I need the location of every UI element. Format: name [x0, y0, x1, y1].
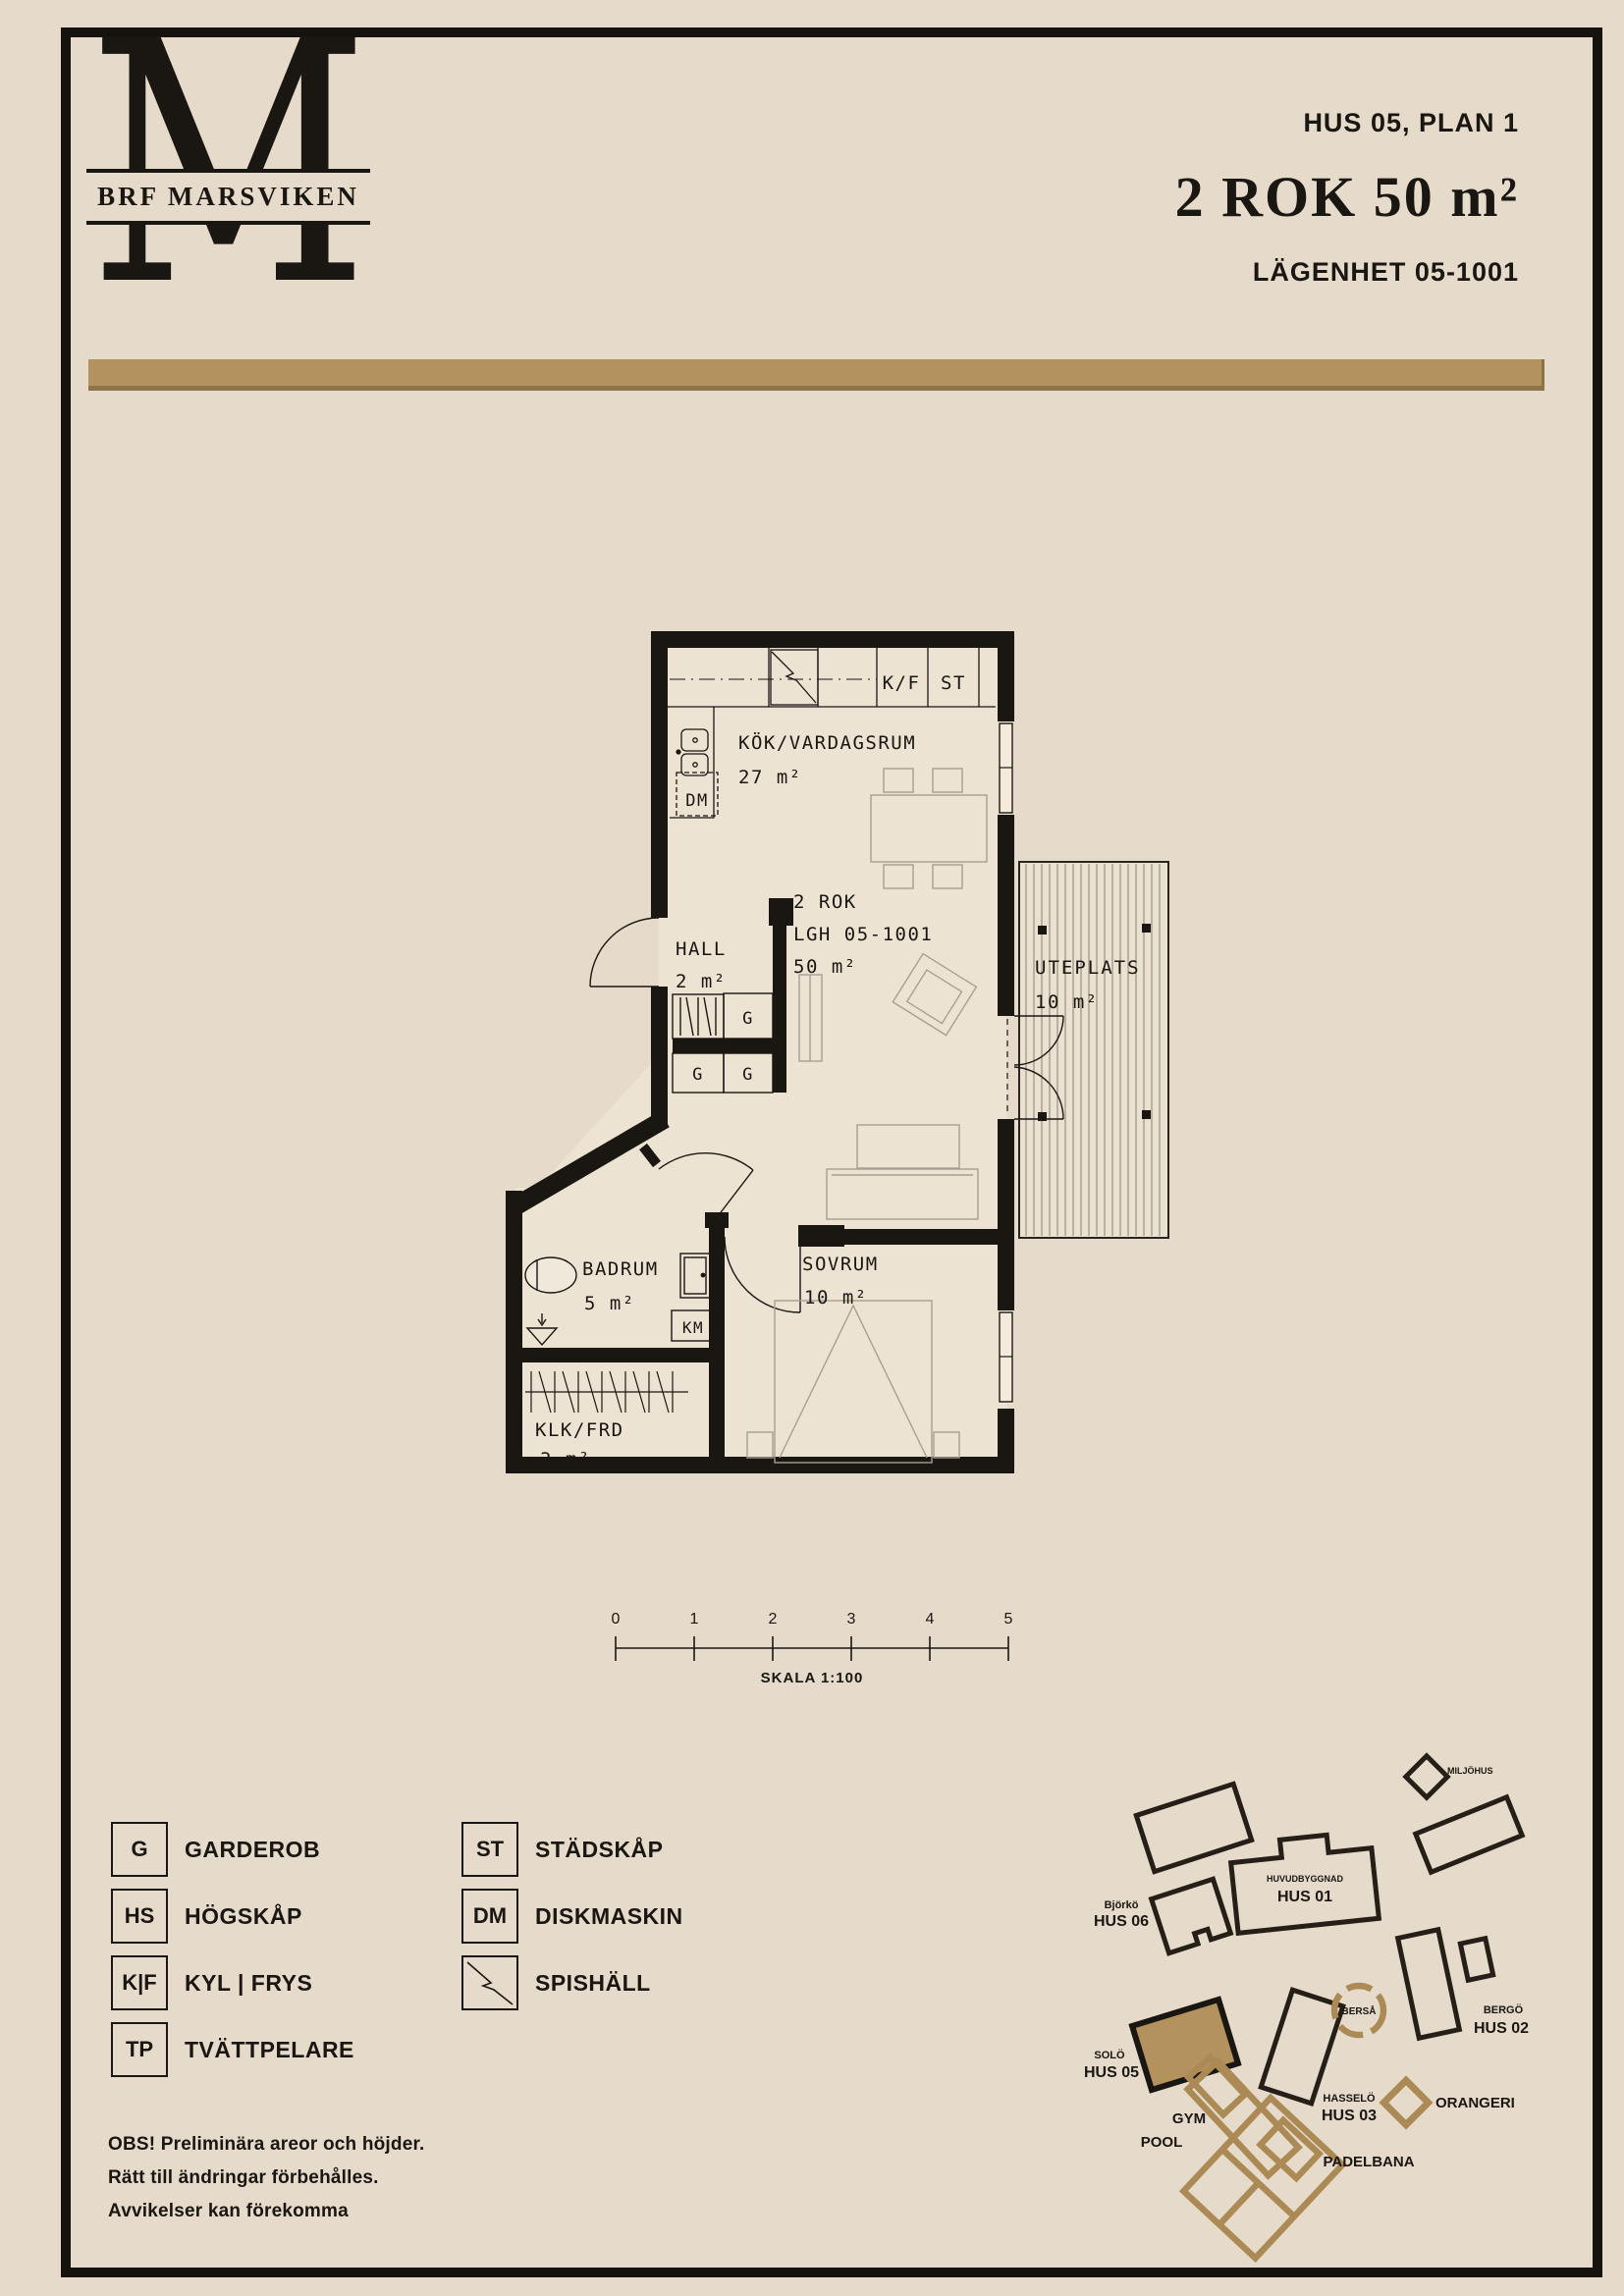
site-label-hus02: HUS 02 [1474, 2020, 1529, 2037]
room-bathroom-area: 5 m² [584, 1293, 635, 1314]
unit-area: 50 m² [793, 956, 857, 978]
room-closet-area: 3 m² [540, 1449, 591, 1470]
header-block: HUS 05, PLAN 1 2 ROK 50 m² LÄGENHET 05-1… [1175, 108, 1519, 288]
fixture-st-label: ST [941, 672, 966, 694]
fixture-kf-label: K/F [883, 672, 921, 694]
legend-symbol-kf: K|F [111, 1955, 168, 2010]
disclaimer-line-1: OBS! Preliminära areor och höjder. [108, 2128, 425, 2162]
fixture-km-label: KM [682, 1318, 704, 1337]
room-bathroom-name: BADRUM [582, 1258, 659, 1280]
site-label-orangeri: ORANGERI [1435, 2095, 1515, 2111]
gold-divider [88, 359, 1544, 391]
unit-type: 2 ROK [793, 891, 857, 913]
site-building-hus06 [1152, 1879, 1231, 1953]
disclaimer-text: OBS! Preliminära areor och höjder. Rätt … [108, 2128, 425, 2228]
disclaimer-line-3: Avvikelser kan förekomma [108, 2195, 425, 2228]
fixture-dm-label: DM [685, 791, 708, 811]
legend-column-2: ST STÄDSKÅP DM DISKMASKIN SPISHÄLL [461, 1822, 683, 2022]
wardrobe-g-3: G [742, 1065, 754, 1085]
site-label-hus03: HUS 03 [1322, 2108, 1377, 2124]
legend-symbol-hs: HS [111, 1889, 168, 1944]
scale-tick-3: 3 [847, 1611, 856, 1628]
site-label-miljohus: MILJÖHUS [1447, 1766, 1493, 1776]
legend-item-hogskap: HS HÖGSKÅP [111, 1889, 354, 1944]
room-terrace-area: 10 m² [1035, 991, 1099, 1013]
logo-monogram: M [88, 0, 368, 332]
site-label-huvudbyggnad: HUVUDBYGGNAD [1267, 1874, 1344, 1884]
scale-tick-5: 5 [1004, 1611, 1013, 1628]
room-terrace-name: UTEPLATS [1035, 957, 1141, 979]
scale-tick-0: 0 [612, 1611, 621, 1628]
scale-tick-4: 4 [926, 1611, 935, 1628]
wardrobe-g-1: G [742, 1009, 754, 1029]
site-building-hus03 [1261, 1990, 1342, 2104]
apartment-label: LÄGENHET 05-1001 [1175, 257, 1519, 288]
wardrobe-g-2: G [692, 1065, 704, 1085]
site-building-hus02b [1460, 1939, 1492, 1981]
site-map: MILJÖHUS Björkö HUS 06 HUVUDBYGGNAD HUS … [1070, 1706, 1551, 2266]
room-kitchen-area: 27 m² [738, 767, 802, 788]
logo-band: BRF MARSVIKEN [86, 169, 370, 225]
stove-lightning-icon [461, 1955, 518, 2010]
room-hall-area: 2 m² [676, 971, 727, 992]
scale-label: SKALA 1:100 [761, 1670, 864, 1686]
site-building-hus02 [1398, 1930, 1460, 2038]
room-bedroom-area: 10 m² [804, 1287, 868, 1308]
legend-symbol-st: ST [461, 1822, 518, 1877]
site-building-unlabeled [1136, 1784, 1251, 1871]
site-label-hus01: HUS 01 [1277, 1889, 1332, 1905]
room-kitchen-name: KÖK/VARDAGSRUM [738, 731, 916, 754]
legend-item-diskmaskin: DM DISKMASKIN [461, 1889, 683, 1944]
site-label-hasselo: HASSELÖ [1323, 2092, 1376, 2105]
scale-bar: 0 1 2 3 4 5 SKALA 1:100 [604, 1592, 1026, 1690]
site-label-solo: SOLÖ [1094, 2049, 1125, 2061]
room-hall-name: HALL [676, 938, 727, 960]
unit-id: LGH 05-1001 [793, 924, 933, 945]
site-label-padelbana: PADELBANA [1323, 2154, 1414, 2170]
toilet-icon [525, 1257, 576, 1293]
brand-name: BRF MARSVIKEN [97, 182, 359, 212]
legend-item-garderob: G GARDEROB [111, 1822, 354, 1877]
room-closet-name: KLK/FRD [535, 1419, 624, 1441]
page-title: 2 ROK 50 m² [1175, 164, 1519, 230]
legend-column-1: G GARDEROB HS HÖGSKÅP K|F KYL | FRYS TP … [111, 1822, 354, 2089]
legend-symbol-g: G [111, 1822, 168, 1877]
disclaimer-line-2: Rätt till ändringar förbehålles. [108, 2162, 425, 2195]
legend-symbol-tp: TP [111, 2022, 168, 2077]
site-label-hus06: HUS 06 [1094, 1913, 1149, 1930]
legend-item-spishall: SPISHÄLL [461, 1955, 683, 2010]
house-plan-label: HUS 05, PLAN 1 [1175, 108, 1519, 138]
site-label-gym: GYM [1172, 2110, 1206, 2127]
terrace-deck [1019, 862, 1168, 1238]
floor-plan: KÖK/VARDAGSRUM 27 m² K/F ST DM 2 ROK LGH… [496, 623, 1183, 1507]
legend-item-stadskap: ST STÄDSKÅP [461, 1822, 683, 1877]
legend-symbol-dm: DM [461, 1889, 518, 1944]
legend-item-tvattpelare: TP TVÄTTPELARE [111, 2022, 354, 2077]
site-label-bergo: BERGÖ [1484, 2003, 1524, 2016]
floorplan-sheet: M BRF MARSVIKEN HUS 05, PLAN 1 2 ROK 50 … [0, 0, 1624, 2296]
site-pool [1183, 2098, 1342, 2258]
site-label-pool: POOL [1141, 2134, 1183, 2151]
room-bedroom-name: SOVRUM [802, 1254, 879, 1275]
legend-item-kylfrys: K|F KYL | FRYS [111, 1955, 354, 2010]
scale-tick-1: 1 [690, 1611, 699, 1628]
brand-logo: M BRF MARSVIKEN [98, 59, 358, 329]
site-building-miljohus [1406, 1756, 1447, 1797]
site-building-east [1416, 1797, 1522, 1872]
site-label-bersa: BERSÅ [1341, 2004, 1376, 2017]
site-orangeri [1383, 2080, 1428, 2124]
site-label-bjorko: Björkö [1105, 1899, 1139, 1911]
site-label-hus05: HUS 05 [1084, 2064, 1139, 2081]
scale-tick-2: 2 [769, 1611, 778, 1628]
